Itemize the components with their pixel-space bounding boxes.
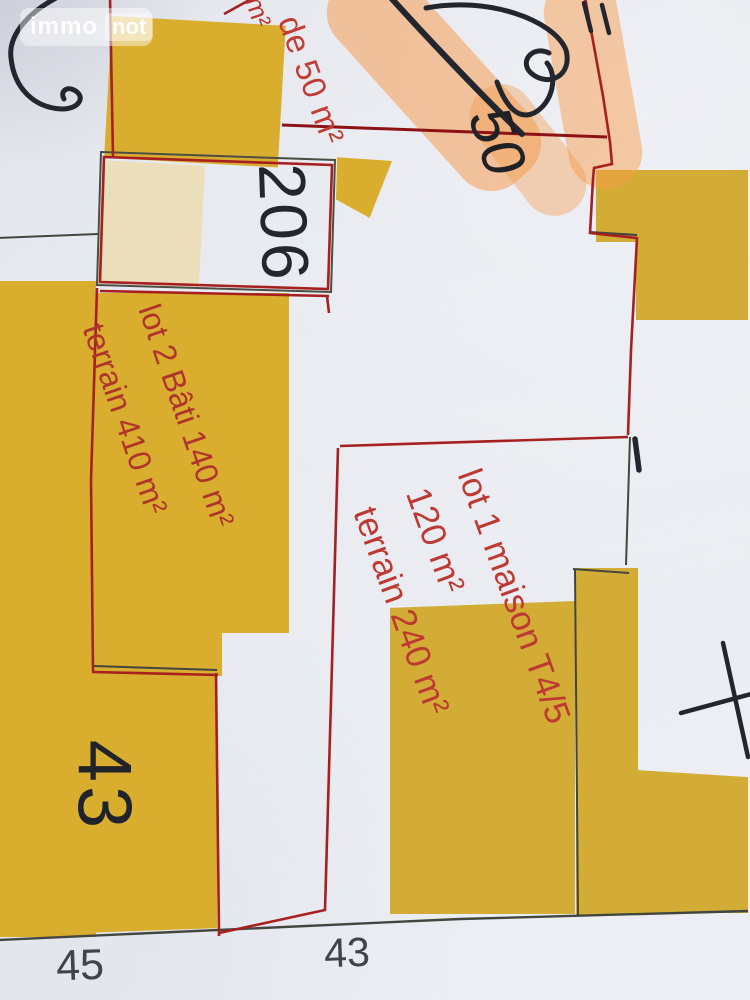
parcel-number-43: 43: [61, 740, 148, 833]
handwriting-scribble-loop: [426, 5, 567, 80]
base-line-right-drop: [626, 437, 630, 565]
survey-cross-icon: [681, 643, 750, 757]
map-number-43: 43: [323, 929, 370, 978]
base-line-maison-top: [573, 569, 629, 573]
base-line-left-top: [0, 234, 98, 238]
watermark-not-text: not: [105, 13, 153, 41]
red-line-lot2-bottom: [92, 672, 218, 675]
watermark-immo-text: immo: [30, 13, 98, 41]
parcel-number-206: 206: [244, 162, 324, 284]
tick-mark-middle: [635, 439, 639, 470]
cadastral-map-photo: m² de 50 m² 206 lot 2 Bâti 140 m² terrai…: [0, 0, 750, 1000]
base-line-bottom: [0, 911, 748, 940]
red-line-right-boundary: [585, 0, 637, 435]
base-line-maison-side: [575, 570, 578, 915]
base-line-43-top: [93, 666, 217, 670]
boundary-lines: [0, 0, 750, 1000]
immonot-watermark: immo not: [20, 8, 152, 46]
red-line-lot2-stub: [327, 296, 329, 313]
red-line-lot1-top: [340, 437, 628, 446]
red-line-43-right: [216, 673, 219, 936]
map-number-45: 45: [55, 941, 105, 992]
tick-mark-top-2: [602, 5, 609, 33]
